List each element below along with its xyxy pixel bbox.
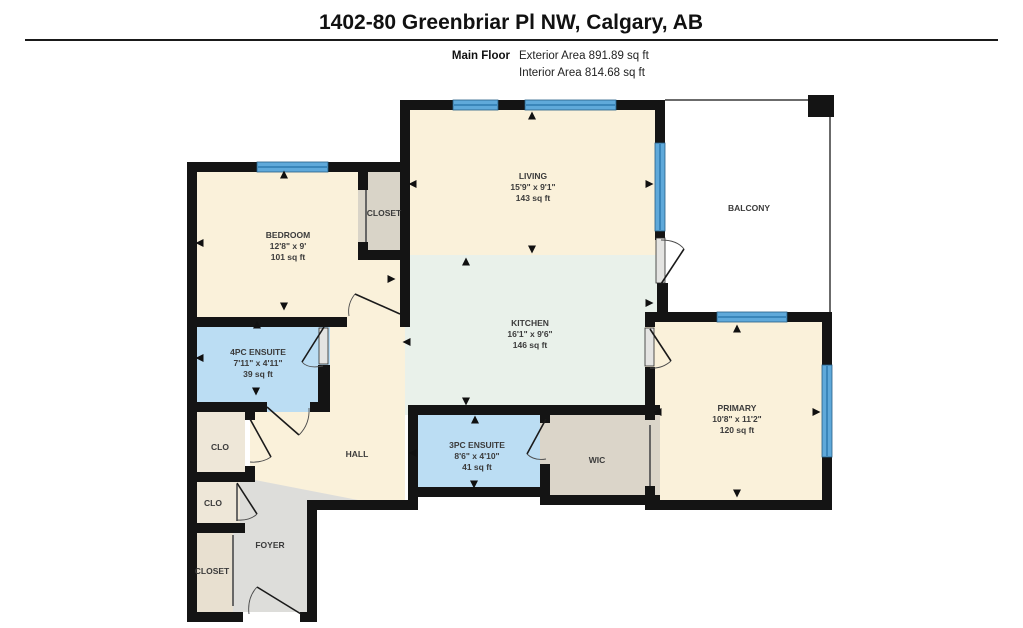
wall (187, 523, 245, 533)
clo-lower-label: CLO (204, 498, 222, 508)
bedroom-area: 101 sq ft (271, 252, 306, 262)
interior-area-label: Interior Area 814.68 sq ft (519, 67, 646, 79)
bedroom-label: BEDROOM (266, 230, 310, 240)
balcony-label: BALCONY (728, 203, 770, 213)
living-dims: 15'9" x 9'1" (510, 182, 555, 192)
wall (408, 487, 550, 497)
primary-dims: 10'8" x 11'2" (712, 414, 761, 424)
wall (358, 250, 410, 260)
clo-upper-label: CLO (211, 442, 229, 452)
wall (187, 472, 255, 482)
ensuite4pc-area: 39 sq ft (243, 369, 273, 379)
hall-label: HALL (346, 449, 369, 459)
kitchen-area: 146 sq ft (513, 340, 548, 350)
primary-label: PRIMARY (718, 403, 757, 413)
wall (655, 100, 665, 143)
wall (645, 367, 655, 420)
wall (307, 500, 317, 622)
page-title: 1402-80 Greenbriar Pl NW, Calgary, AB (319, 11, 703, 34)
wall (245, 410, 255, 420)
wall (307, 500, 418, 510)
header: 1402-80 Greenbriar Pl NW, Calgary, AB Ma… (25, 11, 998, 79)
floorplan-page: 1402-80 Greenbriar Pl NW, Calgary, AB Ma… (0, 0, 1023, 628)
balcony-corner-post (808, 95, 834, 117)
foyer-label: FOYER (255, 540, 284, 550)
living-label: LIVING (519, 171, 548, 181)
wall (187, 612, 243, 622)
bedroom-dims: 12'8" x 9' (270, 241, 306, 251)
ensuite3pc-label: 3PC ENSUITE (449, 440, 505, 450)
ensuite4pc-dims: 7'11" x 4'11" (234, 358, 283, 368)
floor-label: Main Floor (452, 50, 511, 62)
wall (645, 500, 832, 510)
wall (310, 402, 330, 412)
ensuite3pc-dims: 8'6" x 4'10" (454, 451, 499, 461)
ensuite3pc-area: 41 sq ft (462, 462, 492, 472)
closet-entry-label: CLOSET (195, 566, 230, 576)
kitchen-label: KITCHEN (511, 318, 549, 328)
header-divider (25, 39, 998, 41)
wall (408, 405, 660, 415)
primary-area: 120 sq ft (720, 425, 755, 435)
wall (187, 162, 197, 622)
door-slab-balcony (656, 238, 665, 283)
wall (400, 100, 410, 327)
closet-bedroom-label: CLOSET (367, 208, 402, 218)
wall (540, 495, 660, 505)
ensuite4pc-label: 4PC ENSUITE (230, 347, 286, 357)
wall (318, 317, 330, 327)
kitchen-dims: 16'1" x 9'6" (507, 329, 552, 339)
wall (358, 166, 368, 190)
exterior-area-label: Exterior Area 891.89 sq ft (519, 50, 650, 62)
living-area: 143 sq ft (516, 193, 551, 203)
floorplan-canvas: 1402-80 Greenbriar Pl NW, Calgary, AB Ma… (0, 0, 1023, 628)
wall (657, 283, 668, 315)
wic-label: WIC (589, 455, 606, 465)
